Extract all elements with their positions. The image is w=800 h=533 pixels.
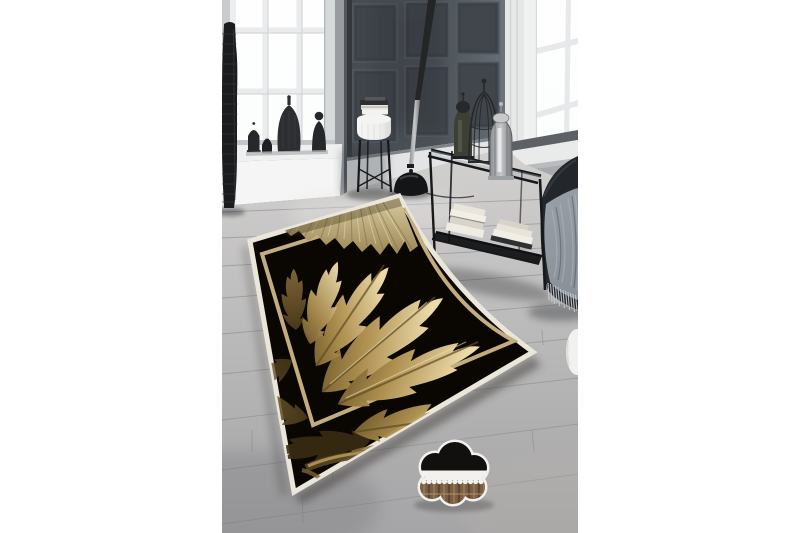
page-background — [0, 0, 800, 533]
right-window — [505, 0, 578, 173]
room-scene — [222, 0, 578, 533]
product-photo — [222, 0, 578, 533]
left-window — [222, 0, 342, 211]
ribbed-floor-vase — [222, 22, 238, 208]
